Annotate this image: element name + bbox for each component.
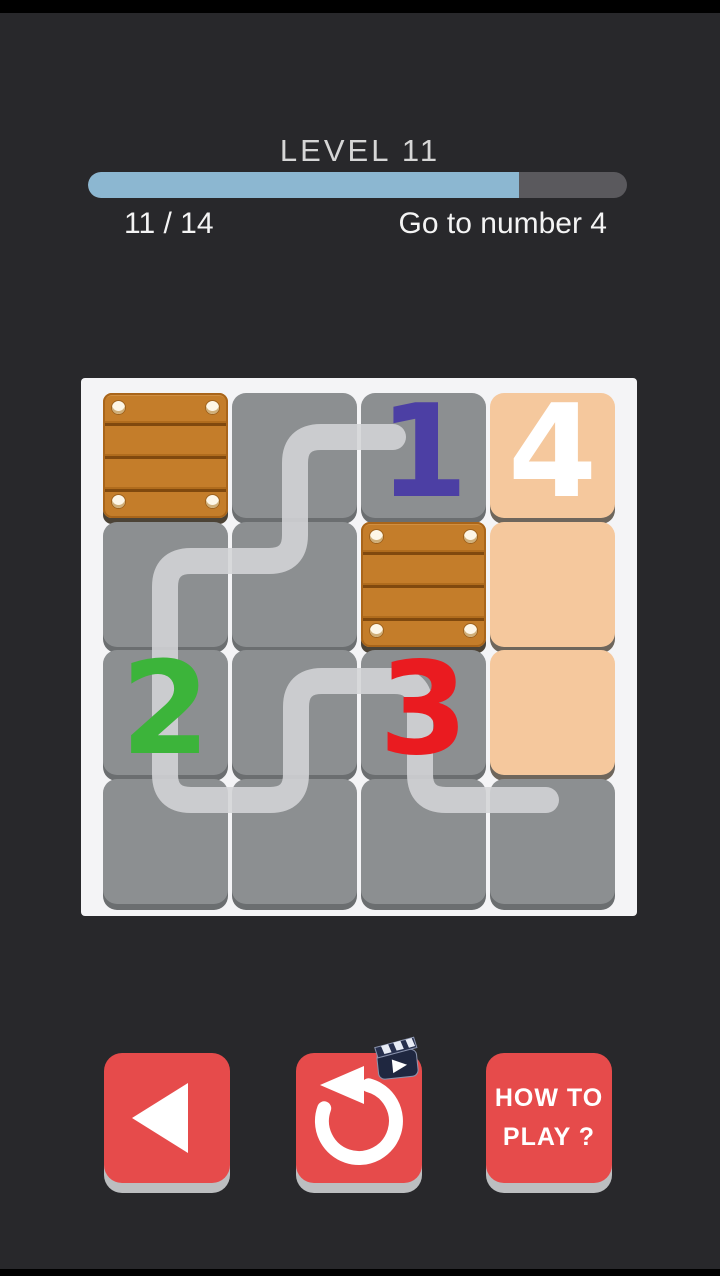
help-label-line1: HOW TO [486,1079,612,1118]
video-ad-clapper-icon [372,1034,423,1085]
back-button[interactable] [104,1053,230,1183]
cell-r3c2[interactable] [232,650,357,775]
cell-r4c2[interactable] [232,779,357,904]
board-grid: 1423 [103,393,615,904]
progress-fill [88,172,519,198]
cell-r2c2[interactable] [232,522,357,647]
cell-r1c2[interactable] [232,393,357,518]
number-label: 2 [103,650,228,770]
number-label: 1 [361,393,486,513]
goal-text: Go to number 4 [399,207,607,241]
progress-count: 11 / 14 [124,207,214,241]
how-to-play-button[interactable]: HOW TO PLAY ? [486,1053,612,1183]
number-label: 3 [361,650,486,770]
cell-r1c4-number-4[interactable]: 4 [490,393,615,518]
stats-row: 11 / 14 Go to number 4 [88,204,627,244]
cell-r4c1[interactable] [103,779,228,904]
cell-r4c4[interactable] [490,779,615,904]
crate-nail-icon [370,530,383,543]
cell-r2c1[interactable] [103,522,228,647]
cell-r2c4[interactable] [490,522,615,647]
crate-nail-icon [464,530,477,543]
crate-nail-icon [112,401,125,414]
cell-r1c3-number-1[interactable]: 1 [361,393,486,518]
help-label-line2: PLAY ? [486,1118,612,1157]
cell-r2c3-crate [361,522,486,647]
cell-r3c4[interactable] [490,650,615,775]
game-screen: LEVEL 11 11 / 14 Go to number 4 1423 [0,0,720,1276]
cell-r4c3[interactable] [361,779,486,904]
progress-bar [88,172,627,198]
cell-r1c1-crate [103,393,228,518]
cell-r3c3-number-3[interactable]: 3 [361,650,486,775]
crate-nail-icon [112,495,125,508]
crate-nail-icon [206,401,219,414]
game-board: 1423 [81,378,637,916]
restart-button[interactable] [296,1053,422,1183]
back-arrow-icon [111,1055,223,1181]
crate-nail-icon [206,495,219,508]
level-title: LEVEL 11 [0,133,720,169]
top-letterbox-bar [0,0,720,13]
number-label: 4 [490,393,615,513]
bottom-letterbox-bar [0,1269,720,1276]
cell-r3c1-number-2[interactable]: 2 [103,650,228,775]
